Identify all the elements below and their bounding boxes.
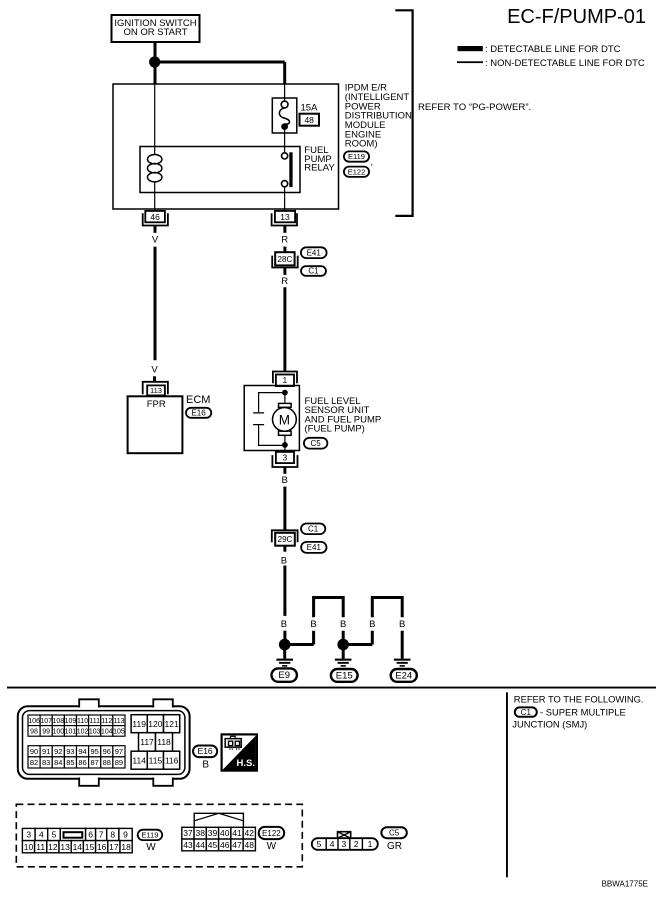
svg-text:5: 5	[52, 830, 57, 840]
svg-text:B: B	[340, 619, 346, 630]
svg-text:82: 82	[30, 758, 38, 767]
svg-text:117: 117	[140, 737, 154, 747]
svg-text:13: 13	[60, 842, 70, 852]
svg-text:92: 92	[54, 747, 62, 756]
svg-text:99: 99	[42, 728, 50, 735]
svg-text:W: W	[146, 842, 156, 853]
svg-text:E119: E119	[141, 831, 158, 840]
svg-text:V: V	[152, 235, 159, 246]
svg-text:11: 11	[36, 842, 45, 852]
svg-text:98: 98	[30, 728, 38, 735]
svg-text:28C: 28C	[278, 255, 293, 264]
svg-text:104: 104	[101, 728, 113, 735]
svg-text:44: 44	[195, 840, 205, 850]
svg-text:B: B	[282, 475, 288, 486]
svg-text:48: 48	[304, 115, 314, 125]
svg-text:JUNCTION (SMJ): JUNCTION (SMJ)	[512, 719, 587, 730]
svg-text:9: 9	[123, 830, 128, 840]
svg-text:E122: E122	[262, 829, 281, 838]
svg-text:88: 88	[103, 758, 111, 767]
svg-text:39: 39	[208, 828, 218, 838]
svg-text:12: 12	[48, 842, 58, 852]
svg-text:87: 87	[91, 758, 99, 767]
svg-text:112: 112	[101, 718, 112, 725]
svg-text:116: 116	[165, 755, 179, 765]
svg-text:119: 119	[132, 719, 146, 729]
svg-text:6: 6	[88, 830, 93, 840]
svg-text:H.S.: H.S.	[237, 758, 255, 769]
svg-text:13: 13	[280, 212, 290, 222]
svg-text:1: 1	[368, 839, 373, 849]
svg-text:110: 110	[77, 718, 88, 725]
svg-text:FPR: FPR	[147, 399, 166, 410]
svg-text:103: 103	[89, 728, 101, 735]
svg-text:18: 18	[121, 842, 131, 852]
svg-text:94: 94	[78, 747, 86, 756]
svg-text:16: 16	[97, 842, 107, 852]
svg-text:90: 90	[30, 747, 38, 756]
svg-text:46: 46	[220, 840, 230, 850]
svg-text:111: 111	[89, 718, 100, 725]
svg-text:C5: C5	[389, 828, 400, 837]
svg-text:E119: E119	[348, 152, 365, 161]
svg-text:E41: E41	[307, 543, 322, 552]
svg-text:1: 1	[283, 375, 288, 385]
svg-text:113: 113	[113, 718, 124, 725]
svg-text:43: 43	[183, 840, 193, 850]
svg-text:95: 95	[91, 747, 99, 756]
svg-text:106: 106	[28, 718, 40, 725]
svg-text:ROOM): ROOM)	[345, 139, 378, 150]
svg-text:114: 114	[132, 755, 146, 765]
svg-text:15A: 15A	[301, 103, 319, 114]
svg-text:46: 46	[150, 212, 160, 222]
svg-text:RELAY: RELAY	[304, 163, 335, 174]
svg-text:- SUPER MULTIPLE: - SUPER MULTIPLE	[540, 707, 626, 718]
svg-text:GR: GR	[387, 841, 402, 852]
svg-text:: DETECTABLE LINE FOR DTC: : DETECTABLE LINE FOR DTC	[485, 44, 621, 55]
svg-text:E16: E16	[191, 409, 206, 418]
svg-text:83: 83	[42, 758, 50, 767]
svg-text:E41: E41	[307, 248, 322, 257]
svg-text:B: B	[202, 759, 209, 770]
svg-text:REFER TO “PG-POWER”.: REFER TO “PG-POWER”.	[418, 102, 531, 113]
svg-text:B: B	[281, 619, 287, 630]
svg-text:C1: C1	[308, 524, 319, 533]
svg-text:W: W	[267, 841, 277, 852]
svg-text:E24: E24	[395, 670, 412, 681]
svg-text:91: 91	[42, 747, 50, 756]
svg-text:84: 84	[54, 758, 62, 767]
svg-text:C5: C5	[310, 439, 321, 448]
svg-text:EC-F/PUMP-01: EC-F/PUMP-01	[507, 6, 646, 28]
svg-text:B: B	[369, 619, 375, 630]
svg-text:113: 113	[150, 386, 162, 395]
svg-text:,: ,	[371, 157, 374, 167]
svg-text:E16: E16	[198, 746, 213, 756]
svg-text:R: R	[281, 276, 288, 287]
svg-text:93: 93	[66, 747, 74, 756]
svg-text:5: 5	[317, 839, 322, 849]
svg-text:102: 102	[77, 728, 89, 735]
svg-text:3: 3	[283, 453, 288, 463]
svg-text:7: 7	[99, 830, 104, 840]
svg-text:42: 42	[245, 828, 255, 838]
svg-text:4: 4	[39, 830, 44, 840]
svg-text:C1: C1	[308, 267, 319, 276]
svg-text:101: 101	[65, 728, 77, 735]
svg-text:109: 109	[65, 718, 77, 725]
svg-text:B: B	[310, 619, 316, 630]
svg-text:45: 45	[208, 840, 218, 850]
svg-text:47: 47	[232, 840, 242, 850]
svg-text:108: 108	[52, 718, 64, 725]
svg-text:ECM: ECM	[186, 394, 210, 406]
svg-text:121: 121	[165, 719, 179, 729]
svg-text:37: 37	[183, 828, 193, 838]
svg-text:10: 10	[24, 842, 34, 852]
svg-text:B: B	[399, 619, 405, 630]
svg-text:4: 4	[330, 839, 335, 849]
svg-text:B: B	[281, 555, 287, 566]
svg-text:40: 40	[220, 828, 230, 838]
svg-text:E15: E15	[336, 670, 353, 681]
svg-text:R: R	[281, 235, 288, 246]
svg-text:17: 17	[109, 842, 119, 852]
svg-text:C1: C1	[521, 708, 532, 717]
svg-text:107: 107	[40, 718, 52, 725]
svg-text:3: 3	[342, 839, 347, 849]
svg-text:97: 97	[115, 747, 123, 756]
svg-text:48: 48	[245, 840, 255, 850]
svg-text:14: 14	[73, 842, 83, 852]
svg-text:105: 105	[113, 728, 125, 735]
svg-text:115: 115	[149, 755, 163, 765]
svg-text:118: 118	[157, 737, 171, 747]
svg-text:(FUEL PUMP): (FUEL PUMP)	[305, 424, 365, 435]
svg-text:96: 96	[103, 747, 111, 756]
svg-text:38: 38	[195, 828, 205, 838]
svg-text:: NON-DETECTABLE LINE FOR DTC: : NON-DETECTABLE LINE FOR DTC	[485, 58, 645, 69]
svg-text:REFER TO THE FOLLOWING.: REFER TO THE FOLLOWING.	[514, 694, 644, 705]
svg-text:86: 86	[78, 758, 86, 767]
svg-text:41: 41	[232, 828, 242, 838]
svg-text:15: 15	[85, 842, 95, 852]
svg-text:BBWA1775E: BBWA1775E	[602, 880, 648, 889]
svg-text:E122: E122	[348, 167, 366, 176]
svg-text:8: 8	[110, 830, 115, 840]
svg-text:29C: 29C	[278, 535, 293, 544]
svg-text:3: 3	[26, 830, 31, 840]
svg-text:E9: E9	[278, 670, 290, 681]
svg-text:89: 89	[115, 758, 123, 767]
svg-text:120: 120	[148, 719, 162, 729]
svg-text:M: M	[279, 412, 290, 427]
svg-text:2: 2	[354, 839, 359, 849]
svg-text:100: 100	[52, 728, 64, 735]
svg-text:85: 85	[66, 758, 74, 767]
svg-text:ON OR START: ON OR START	[123, 27, 187, 38]
svg-text:V: V	[151, 364, 158, 375]
